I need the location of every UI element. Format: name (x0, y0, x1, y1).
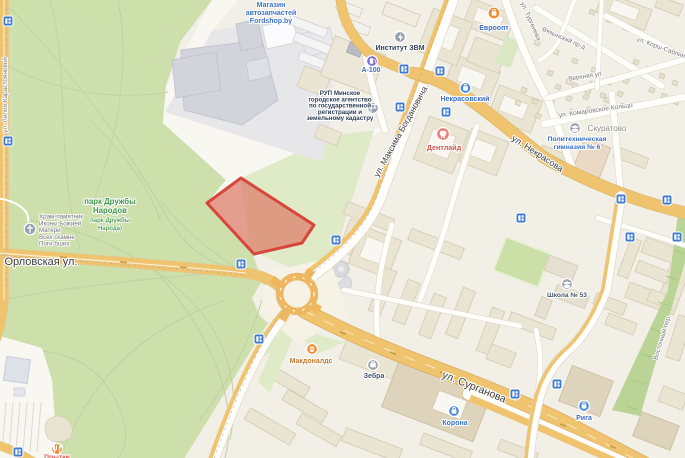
svg-text:земельному кадастру: земельному кадастру (307, 115, 374, 122)
svg-text:Институт ЗВМ: Институт ЗВМ (375, 45, 424, 52)
svg-text:Магазин: Магазин (257, 2, 286, 9)
svg-text:Рига: Рига (576, 415, 592, 422)
svg-text:Зебра: Зебра (364, 372, 385, 380)
svg-text:Макдоналдс: Макдоналдс (290, 358, 333, 365)
svg-text:Fordshop.by: Fordshop.by (250, 18, 292, 25)
svg-text:парк Дружбы: парк Дружбы (84, 197, 136, 206)
svg-text:парк Дружбы: парк Дружбы (90, 217, 130, 224)
svg-text:Скуратово: Скуратово (588, 124, 627, 133)
svg-text:Дентлайд: Дентлайд (427, 143, 462, 152)
svg-text:Прытки: Прытки (44, 454, 70, 458)
svg-text:Школа № 53: Школа № 53 (547, 292, 587, 299)
svg-text:А-100: А-100 (361, 67, 380, 74)
svg-text:Некрасовский: Некрасовский (441, 95, 490, 103)
svg-text:Народа): Народа) (98, 226, 122, 232)
svg-text:Корона: Корона (442, 420, 467, 427)
svg-text:ул. Лилии Карастояновой: ул. Лилии Карастояновой (1, 57, 9, 133)
svg-text:гимназия № 6: гимназия № 6 (554, 144, 601, 151)
svg-text:Орловская ул.: Орловская ул. (4, 256, 77, 268)
svg-text:Народов: Народов (93, 206, 127, 215)
svg-text:Евроопт: Евроопт (479, 25, 509, 32)
svg-text:Поги бших: Поги бших (39, 241, 70, 248)
svg-text:автозапчастей: автозапчастей (246, 9, 297, 17)
svg-text:Политехническая: Политехническая (547, 136, 606, 143)
